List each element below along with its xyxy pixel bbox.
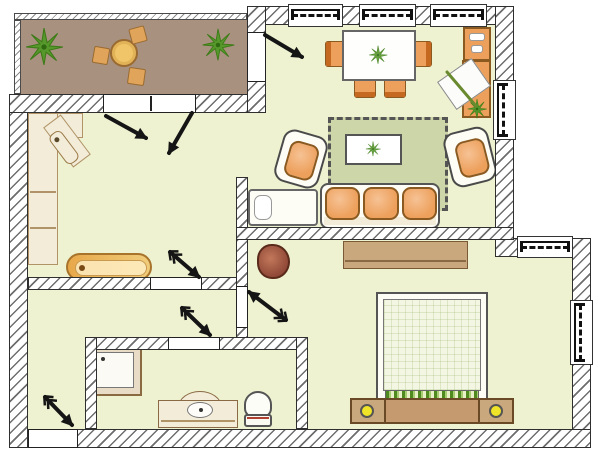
window-rail [497,84,505,136]
window-nook-top [517,236,573,258]
window-rail [434,9,483,17]
bench-button [79,265,85,271]
washbasin-vanity [158,400,238,428]
balcony-french-door [103,94,196,113]
daybed-pillow [254,195,272,220]
counter-divider [30,191,56,193]
wall-cabinet [463,27,491,61]
daybed [248,189,318,226]
window-top-2 [359,4,416,27]
cabinet-dishes [469,33,485,41]
entrance-door [28,429,78,448]
wall-kitchen-divider [28,277,247,290]
window-right-upper [493,80,516,140]
bed-lamp [489,404,503,418]
balcony-side-door [247,32,266,82]
window-rail [292,9,339,17]
window-rail [363,9,412,17]
bathroom-door [168,337,220,350]
counter-divider [30,227,56,229]
pouf [257,244,290,279]
window-rail [574,304,582,361]
toilet-stripe [247,417,269,419]
wall-bathroom-east [296,337,308,429]
floor-plan [0,0,600,450]
window-top-1 [288,4,343,27]
balcony-parapet-left [14,20,21,94]
bed-lamp [360,404,374,418]
toilet-tank [244,414,272,427]
bench-seat [75,260,147,276]
wardrobe-edge-line [345,260,466,262]
bed-duvet [383,299,481,391]
wall-bottom [9,429,591,448]
wall-left [9,94,28,448]
wall-living-bedroom [236,227,514,240]
sofa [320,183,440,229]
shower-tray [96,352,134,388]
wall-bathroom-west [85,337,97,429]
window-bedroom-right [570,300,593,365]
kitchen-door [150,277,202,290]
wardrobe [343,241,468,269]
sofa-cushion [402,187,437,220]
vanity-shelf-line [161,420,235,422]
stool [127,67,146,86]
coffee-table [345,134,402,165]
armchair-cushion [453,136,491,179]
window-top-3 [430,4,487,27]
dining-table [342,30,416,81]
stool [92,46,111,66]
sofa-cushion [363,187,399,220]
balcony-parapet-top [14,13,247,20]
armchair-cushion [282,139,321,183]
sofa-cushion [325,187,360,220]
bedroom-door [236,286,248,328]
shower-drain [101,357,105,361]
window-rail [521,241,569,249]
cabinet-dishes [471,45,483,53]
sink-tap [53,136,60,143]
door-mullion [150,96,152,111]
basin-tap [199,408,203,412]
